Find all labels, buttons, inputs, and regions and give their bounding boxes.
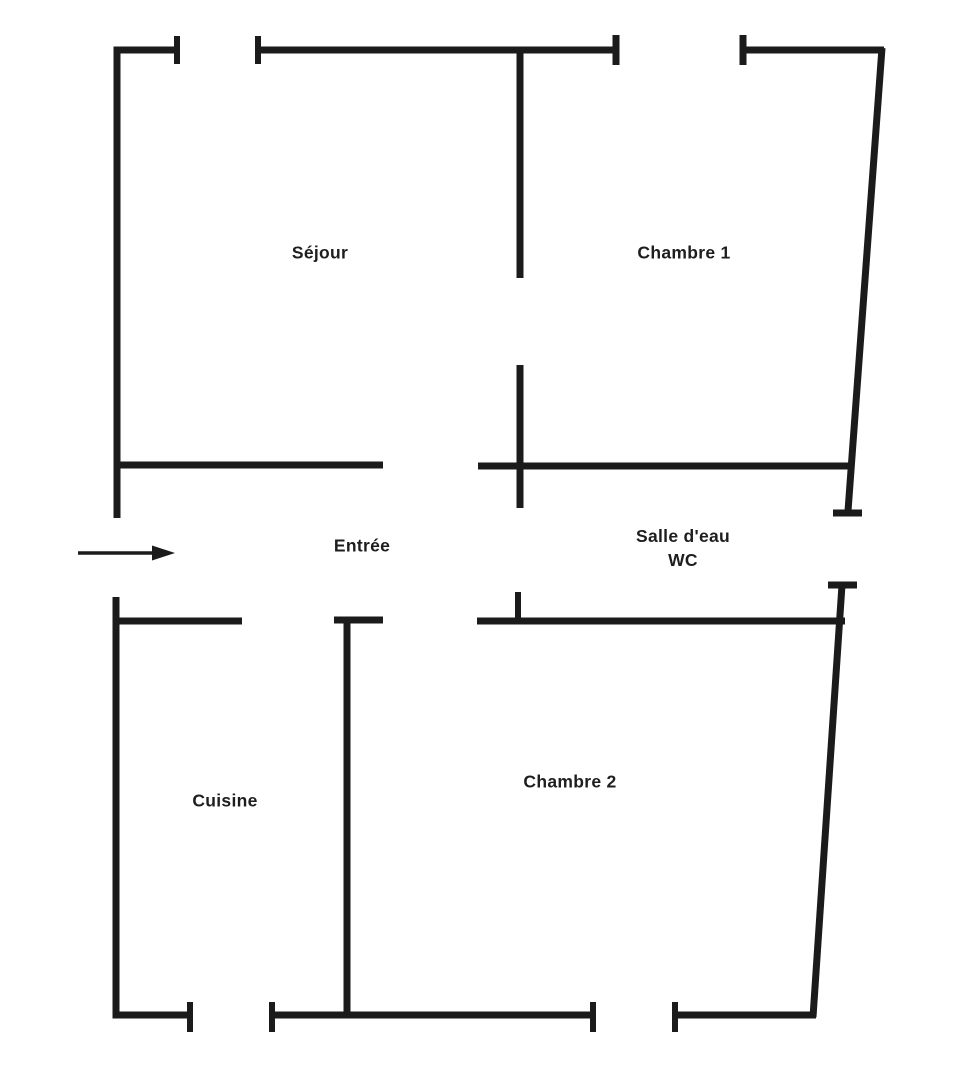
walls-group bbox=[113, 35, 885, 1032]
entrance-arrow-head bbox=[152, 546, 175, 561]
room-label-entree: Entrée bbox=[334, 536, 390, 557]
room-label-salle-deau-wc: Salle d'eau WC bbox=[636, 524, 730, 572]
floor-plan: Séjour Chambre 1 Entrée Salle d'eau WC C… bbox=[0, 0, 953, 1080]
room-label-cuisine: Cuisine bbox=[192, 791, 257, 812]
wall-segment bbox=[813, 585, 842, 1017]
room-label-wc-line2: WC bbox=[636, 548, 730, 572]
room-label-sejour: Séjour bbox=[292, 243, 348, 264]
entrance-arrow-icon bbox=[78, 546, 175, 561]
floor-plan-svg bbox=[0, 0, 953, 1080]
room-label-salle-deau-line1: Salle d'eau bbox=[636, 524, 730, 548]
room-label-chambre-2: Chambre 2 bbox=[523, 772, 616, 793]
room-label-chambre-1: Chambre 1 bbox=[637, 243, 730, 264]
wall-segment bbox=[848, 48, 882, 511]
